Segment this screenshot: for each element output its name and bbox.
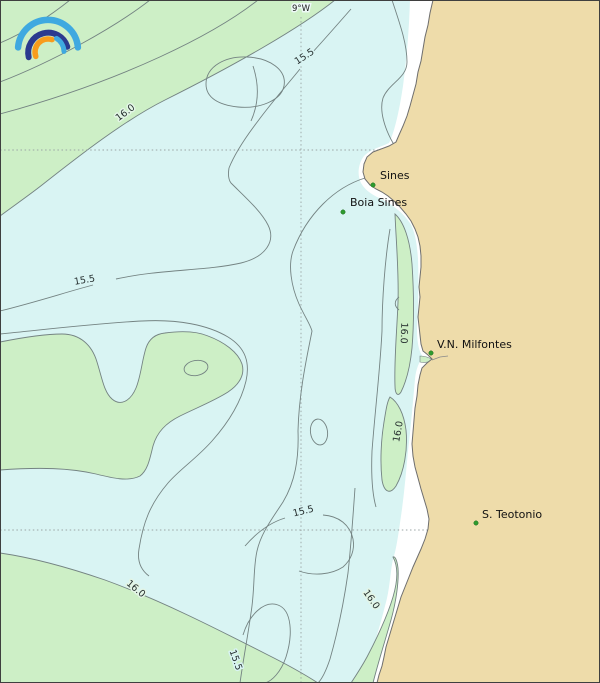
place-marker-boia-sines [341,210,345,214]
place-marker-sines [371,183,375,187]
place-marker-s-teotonio [474,521,478,525]
place-label-s-teotonio: S. Teotonio [482,508,542,521]
place-label-boia-sines: Boia Sines [350,196,407,209]
contour-label: 16.0 [398,322,410,344]
meridian-label: 9°W [292,4,311,14]
place-marker-vn-milfontes [429,351,433,355]
coastal-temperature-map: 16.0 15.5 15.5 16.0 16.0 15.5 16.0 16.0 … [0,0,600,683]
place-label-sines: Sines [380,169,410,182]
place-label-vn-milfontes: V.N. Milfontes [437,338,512,351]
